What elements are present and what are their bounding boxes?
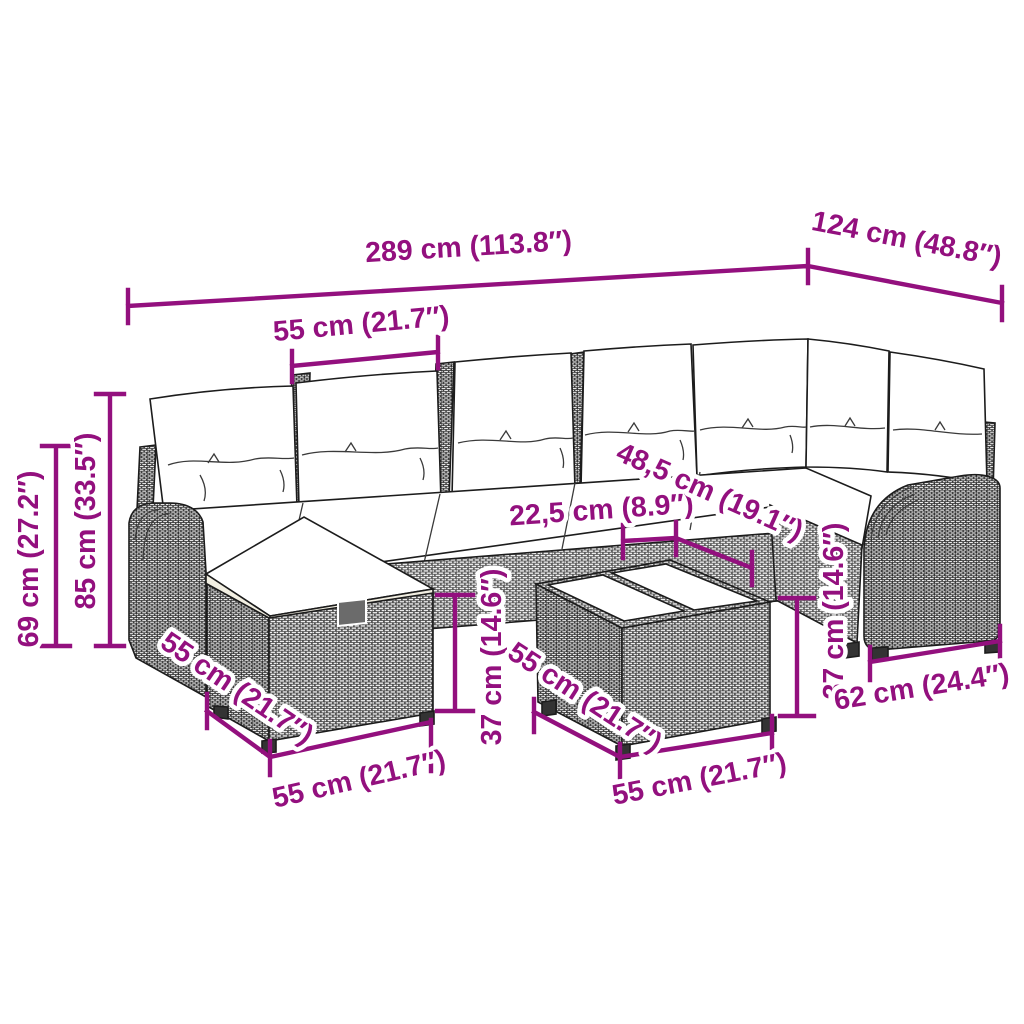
svg-text:69 cm (27.2″): 69 cm (27.2″) (13, 471, 45, 648)
svg-text:37 cm (14.6″): 37 cm (14.6″) (818, 523, 850, 700)
svg-text:37 cm (14.6″): 37 cm (14.6″) (476, 569, 508, 746)
svg-text:85 cm (33.5″): 85 cm (33.5″) (70, 433, 102, 610)
